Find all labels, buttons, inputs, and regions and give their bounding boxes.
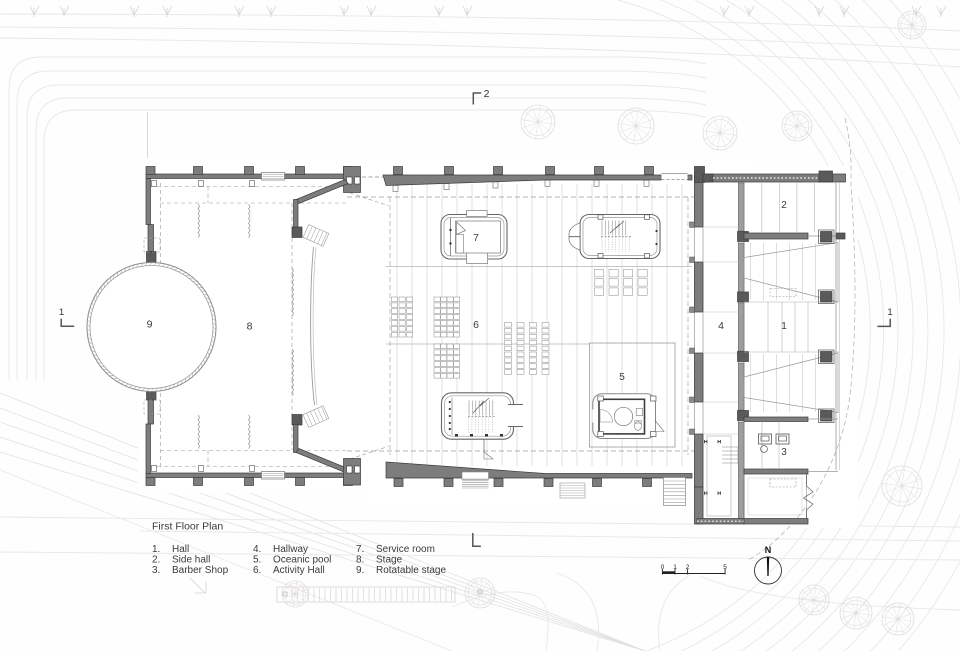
svg-text:1: 1 — [887, 307, 892, 318]
svg-text:Oceanic pool: Oceanic pool — [273, 555, 331, 566]
svg-text:3: 3 — [781, 447, 787, 458]
svg-text:2: 2 — [484, 88, 490, 100]
svg-text:1.: 1. — [152, 544, 160, 555]
svg-text:Barber Shop: Barber Shop — [172, 565, 229, 576]
svg-text:2: 2 — [686, 564, 690, 571]
svg-text:1: 1 — [673, 564, 677, 571]
svg-text:8: 8 — [247, 321, 253, 333]
svg-text:4.: 4. — [253, 544, 261, 555]
svg-text:8.: 8. — [356, 555, 364, 566]
svg-text:7: 7 — [473, 233, 479, 244]
svg-text:Stage: Stage — [376, 555, 403, 566]
svg-text:5: 5 — [723, 564, 727, 571]
svg-text:9: 9 — [147, 319, 153, 331]
svg-text:5: 5 — [619, 372, 625, 383]
svg-text:Service room: Service room — [376, 544, 435, 555]
svg-text:Hall: Hall — [172, 544, 189, 555]
svg-text:First Floor Plan: First Floor Plan — [152, 521, 223, 533]
svg-text:N: N — [765, 545, 772, 555]
svg-text:7.: 7. — [356, 544, 364, 555]
svg-text:1: 1 — [781, 321, 787, 332]
svg-text:3.: 3. — [152, 565, 160, 576]
svg-text:0: 0 — [661, 564, 665, 571]
svg-text:1: 1 — [59, 307, 64, 318]
svg-text:9.: 9. — [356, 565, 364, 576]
svg-text:4: 4 — [718, 320, 724, 332]
svg-text:5.: 5. — [253, 555, 261, 566]
svg-text:2.: 2. — [152, 555, 160, 566]
svg-text:Side hall: Side hall — [172, 555, 210, 566]
svg-text:Activity Hall: Activity Hall — [273, 565, 325, 576]
svg-text:6.: 6. — [253, 565, 261, 576]
svg-text:2: 2 — [781, 200, 787, 211]
svg-text:Rotatable stage: Rotatable stage — [376, 565, 446, 576]
svg-text:6: 6 — [473, 319, 479, 331]
svg-text:Hallway: Hallway — [273, 544, 308, 555]
